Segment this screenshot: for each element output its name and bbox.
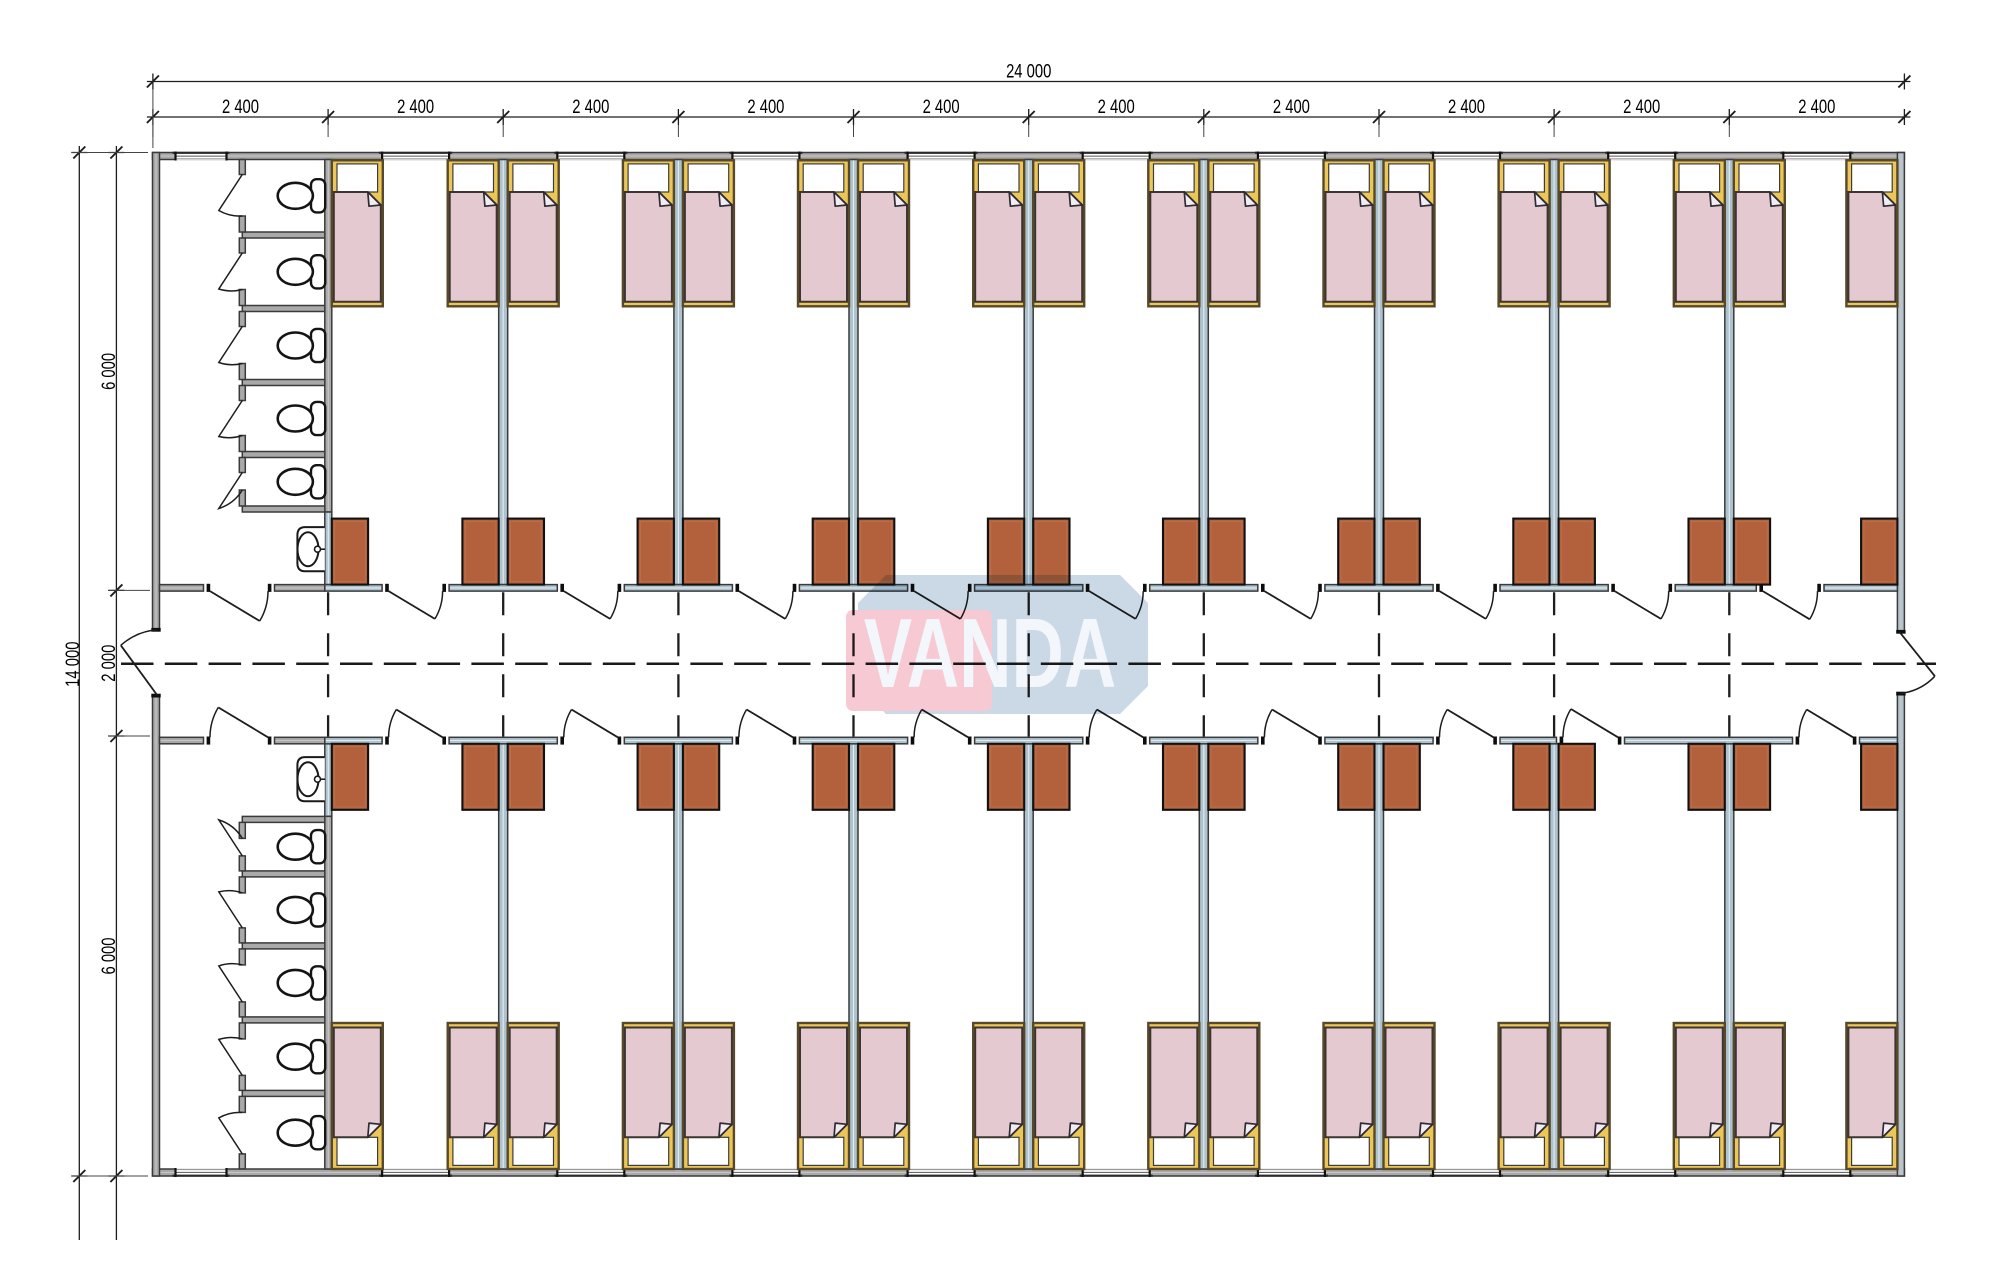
svg-text:2 400: 2 400 — [923, 96, 960, 117]
svg-text:2 400: 2 400 — [1448, 96, 1485, 117]
svg-text:2 400: 2 400 — [222, 96, 259, 117]
svg-text:2 400: 2 400 — [1623, 96, 1660, 117]
svg-text:2 400: 2 400 — [572, 96, 609, 117]
svg-text:2 000: 2 000 — [98, 645, 119, 682]
svg-text:14 000: 14 000 — [62, 642, 83, 687]
svg-text:2 400: 2 400 — [1273, 96, 1310, 117]
svg-text:2 400: 2 400 — [747, 96, 784, 117]
svg-text:6 000: 6 000 — [98, 353, 119, 390]
svg-text:2 400: 2 400 — [1098, 96, 1135, 117]
svg-text:2 400: 2 400 — [1798, 96, 1835, 117]
svg-text:6 000: 6 000 — [98, 937, 119, 974]
svg-text:24 000: 24 000 — [1006, 61, 1051, 82]
svg-text:2 400: 2 400 — [397, 96, 434, 117]
